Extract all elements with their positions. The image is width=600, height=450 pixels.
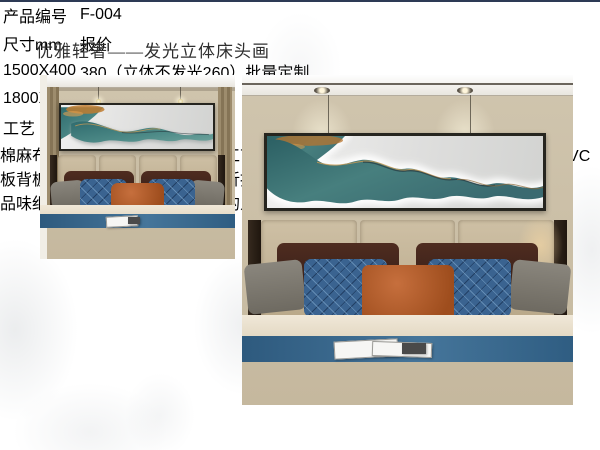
downlight-left — [314, 87, 330, 94]
crown-molding — [40, 88, 235, 91]
ceiling-groove — [242, 83, 573, 85]
spec-value: F-004 — [79, 2, 310, 28]
abstract-wave-art — [61, 105, 213, 149]
magazine — [128, 217, 140, 224]
table-row: 产品编号 F-004 — [2, 2, 310, 28]
pillow-gray-left — [244, 259, 307, 315]
top-border-line — [0, 0, 600, 2]
downlight-right — [457, 87, 473, 94]
pillow-gray-right — [509, 259, 572, 315]
hanging-wire-left — [328, 95, 329, 133]
right-product-photo — [242, 75, 573, 405]
abstract-wave-art-lit — [267, 136, 543, 208]
page-title: 优雅轻奢——发光立体床头画 — [36, 37, 270, 62]
spec-label: 产品编号 — [2, 2, 77, 28]
ceiling — [40, 75, 235, 88]
bed-duvet — [40, 226, 235, 259]
artwork-frame — [264, 133, 546, 211]
bed-duvet — [242, 358, 573, 405]
hanging-wire-right — [470, 95, 471, 133]
catalog-page: 优雅轻奢——发光立体床头画 — [0, 0, 600, 450]
magazine — [402, 343, 426, 354]
artwork-frame — [59, 103, 215, 151]
ceiling — [242, 75, 573, 96]
left-product-photo — [40, 75, 235, 259]
